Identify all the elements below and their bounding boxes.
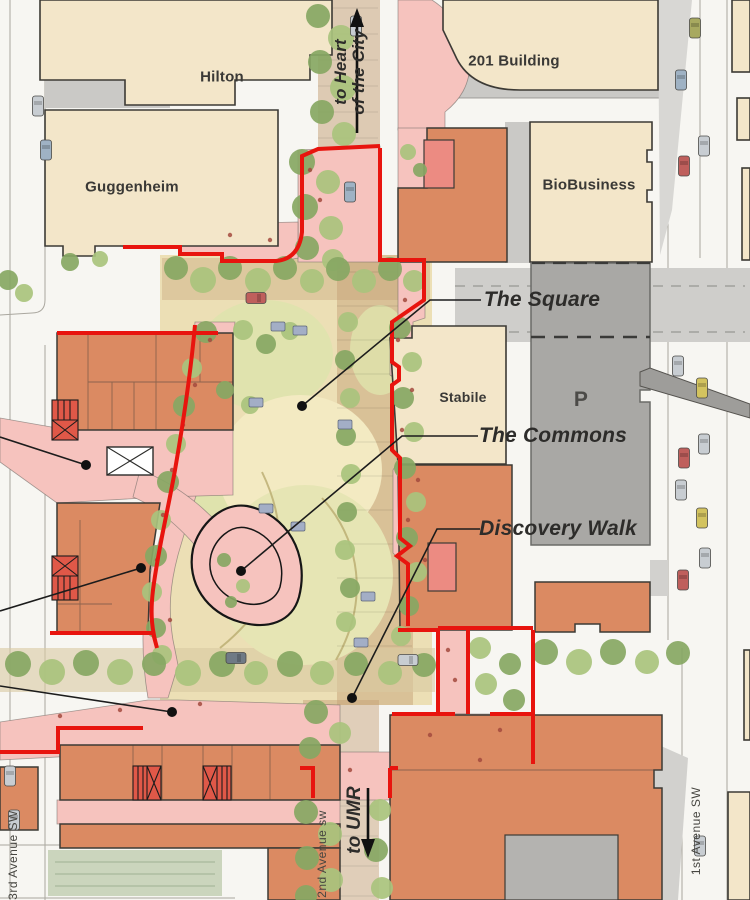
parking-p-label: P (574, 388, 588, 412)
left-block-north (57, 333, 233, 430)
the-square-label: The Square (484, 288, 600, 312)
plaza-north-band-2 (398, 128, 427, 190)
south-row-2 (60, 824, 340, 848)
to-heart-line2: of the City (350, 29, 368, 114)
the-commons-label: The Commons (479, 424, 627, 448)
canopy-x (107, 447, 153, 475)
to-heart-line1: to Heart (332, 29, 350, 114)
courtyard (505, 835, 618, 900)
building-201 (443, 0, 658, 90)
stabile-label: Stabile (439, 389, 486, 405)
first-avenue-label: 1st Avenue SW (689, 787, 703, 875)
third-avenue-label: 3rd Avenue SW (6, 810, 20, 900)
guggenheim-label: Guggenheim (85, 179, 179, 196)
plaza-connector (438, 628, 468, 714)
site-plan-graphics (0, 0, 750, 900)
hilton-label: Hilton (200, 69, 244, 86)
biobusiness-label: BioBusiness (542, 177, 635, 194)
discovery-walk-label: Discovery Walk (479, 517, 637, 541)
building-201-label: 201 Building (468, 53, 560, 70)
site-plan: Hilton Guggenheim 201 Building BioBusine… (0, 0, 750, 900)
to-heart-of-city-label: to Heart of the City (332, 29, 368, 114)
south-row-1 (60, 745, 340, 800)
second-avenue-label: 2nd Avenue sw (315, 810, 329, 898)
to-umr-label: to UMR (344, 786, 366, 854)
lawn-panel (48, 850, 222, 896)
building-c (535, 582, 650, 632)
